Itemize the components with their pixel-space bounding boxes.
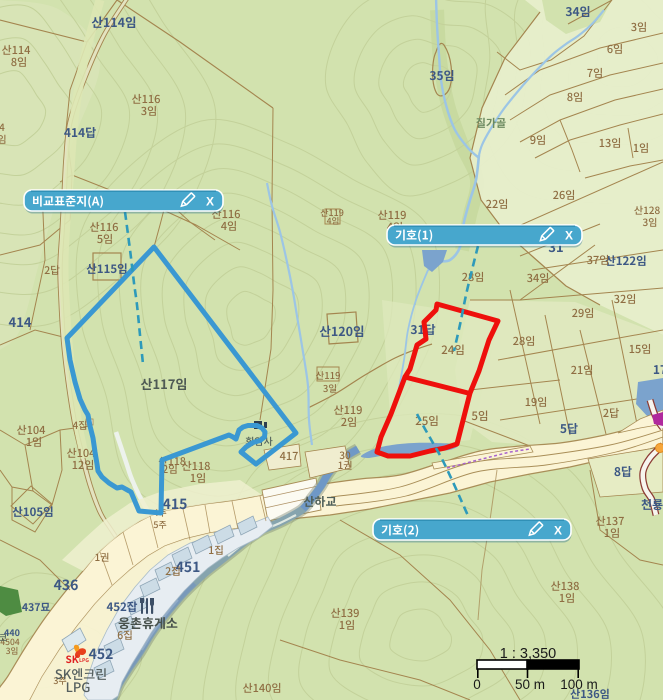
- svg-text:50 m: 50 m: [515, 677, 545, 692]
- svg-text:100 m: 100 m: [560, 677, 598, 692]
- svg-text:X: X: [554, 524, 562, 538]
- svg-text:0: 0: [473, 677, 481, 692]
- svg-text:X: X: [565, 229, 573, 243]
- svg-text:X: X: [206, 195, 214, 209]
